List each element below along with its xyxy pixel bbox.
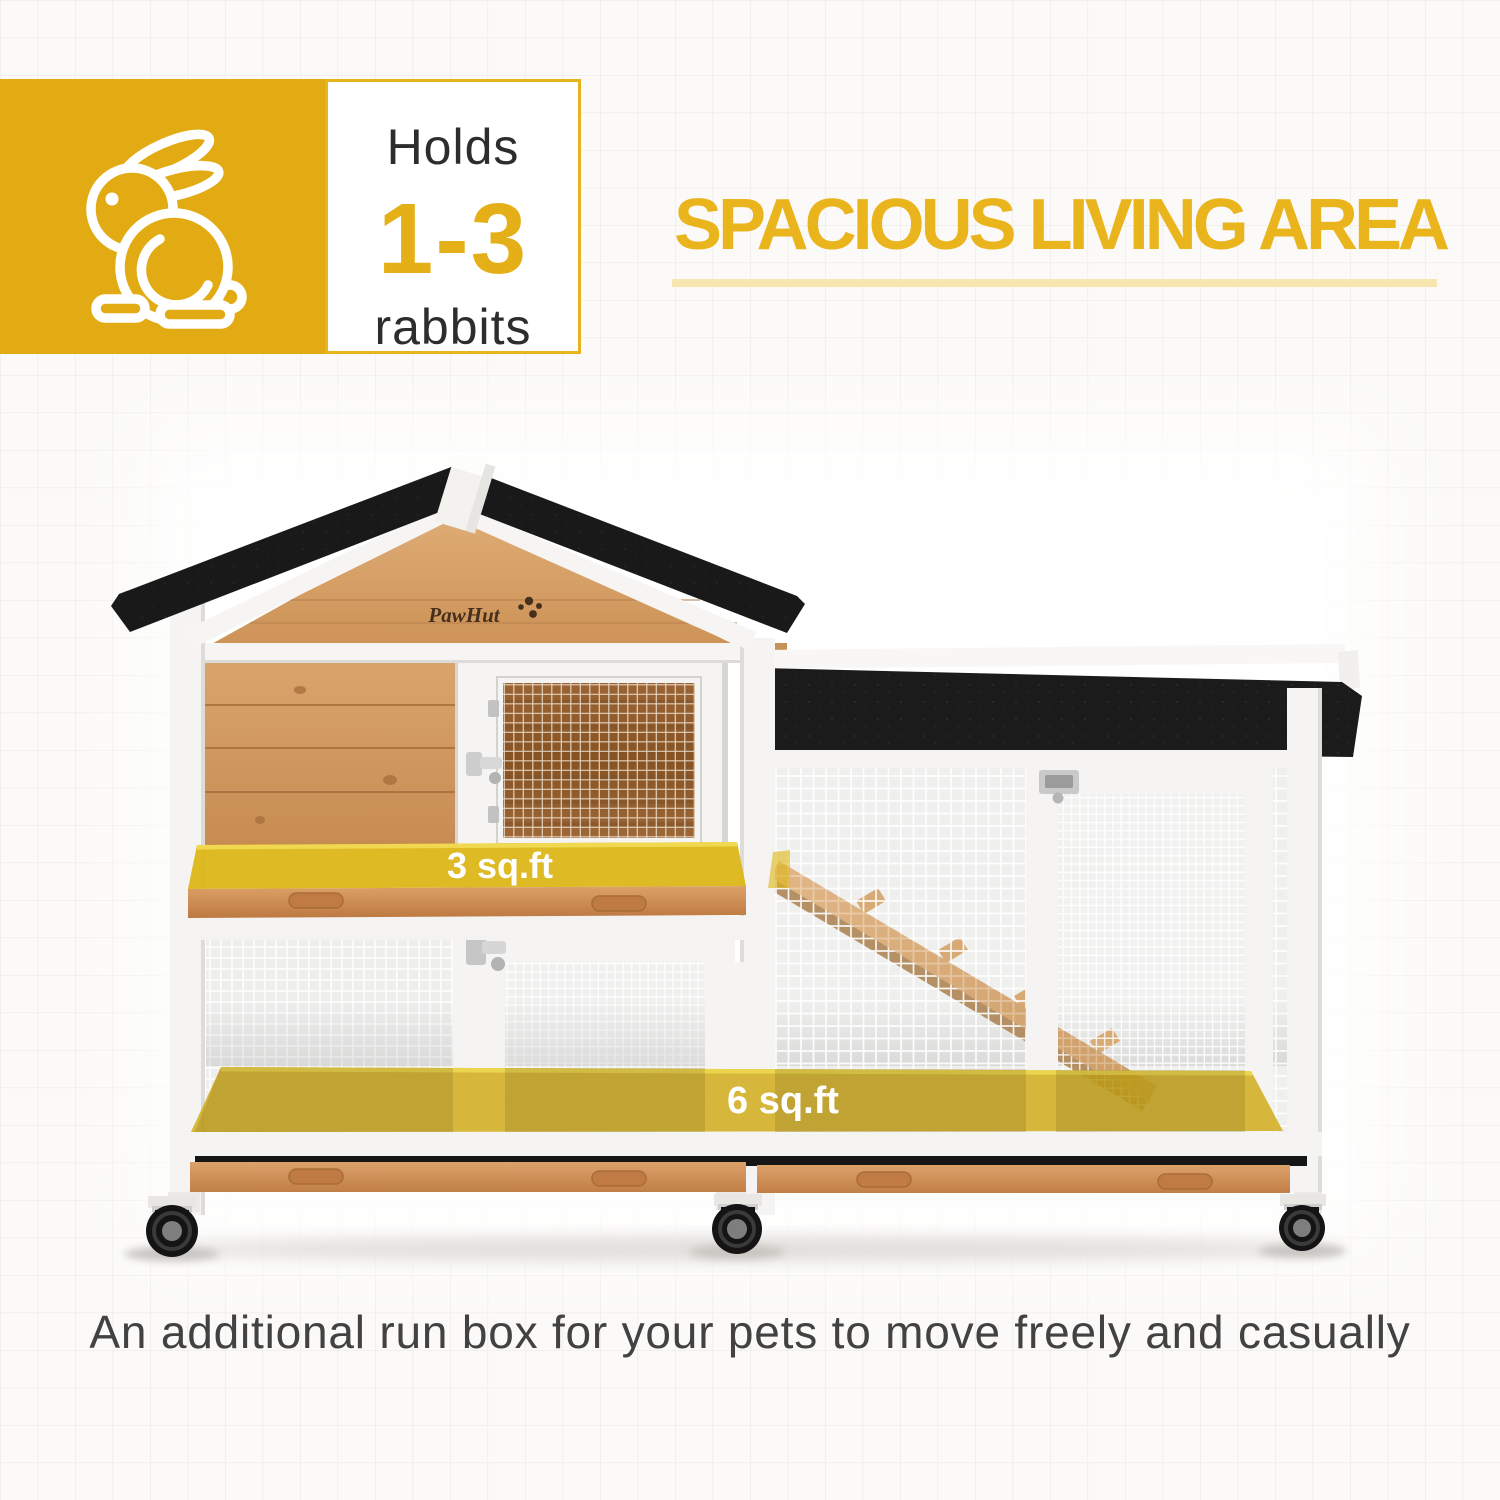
svg-text:An additional run box for your: An additional run box for your pets to m… xyxy=(89,1306,1410,1358)
svg-text:6 sq.ft: 6 sq.ft xyxy=(727,1080,839,1122)
svg-text:Holds: Holds xyxy=(387,119,520,175)
svg-text:SPACIOUS LIVING AREA: SPACIOUS LIVING AREA xyxy=(674,185,1449,265)
svg-text:rabbits: rabbits xyxy=(374,299,531,355)
svg-text:PawHut: PawHut xyxy=(427,603,500,627)
svg-text:3 sq.ft: 3 sq.ft xyxy=(447,845,553,886)
svg-text:1-3: 1-3 xyxy=(378,183,529,295)
